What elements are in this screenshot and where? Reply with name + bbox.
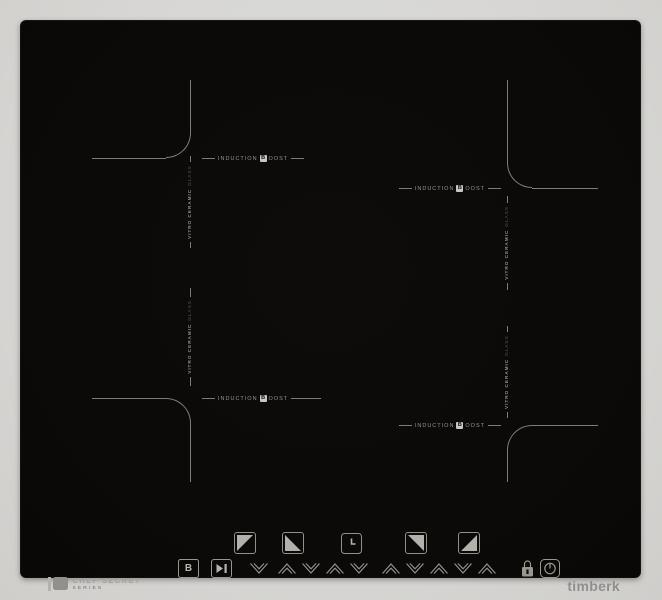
chevron-up-icon <box>325 562 345 575</box>
induction-boost-label: INDUCTIONBOOST <box>418 421 501 430</box>
label-dash <box>202 158 215 159</box>
label-text: INDUCTION <box>218 156 258 162</box>
label-text: GLASS <box>188 165 193 186</box>
boost-key[interactable]: B <box>178 559 199 578</box>
label-text: OOST <box>465 423 485 429</box>
vitro-ceramic-label: VITRO CERAMICGLASS <box>502 347 513 418</box>
chevron-up-icon <box>277 562 297 575</box>
zone-corner-mark <box>190 80 191 134</box>
zone-corner-mark <box>190 423 191 482</box>
cooktop-glass-panel: INDUCTIONBOOST VITRO CERAMICGLASS INDUCT… <box>20 20 641 578</box>
zone-corner-mark <box>92 158 166 159</box>
zone-select-rear-right-key[interactable] <box>405 532 427 554</box>
zone-select-front-left-icon <box>282 532 304 554</box>
label-text: INDUCTION <box>415 423 455 429</box>
induction-boost-label: INDUCTIONBOOST <box>202 154 280 163</box>
chevron-up-icon <box>381 562 401 575</box>
label-text: VITRO CERAMIC <box>188 324 193 374</box>
label-line <box>507 283 508 290</box>
pan-icon <box>48 576 68 591</box>
label-line <box>190 156 191 162</box>
power-up-key[interactable] <box>381 562 401 575</box>
label-text: VITRO CERAMIC <box>505 230 510 280</box>
chevron-down-icon <box>301 562 321 575</box>
series-logo: CHEF SECRET SERIES <box>48 576 141 591</box>
power-up-key[interactable] <box>429 562 449 575</box>
chevron-up-icon <box>429 562 449 575</box>
pan-icon <box>48 577 51 591</box>
power-up-key[interactable] <box>277 562 297 575</box>
zone-corner-mark <box>532 188 598 189</box>
zone-corner-mark <box>166 398 191 423</box>
timer-clock-icon <box>341 533 362 554</box>
label-dash <box>399 425 412 426</box>
label-line <box>507 326 508 332</box>
label-text: VITRO CERAMIC <box>188 189 193 239</box>
play-pause-icon <box>211 559 232 578</box>
boxed-b-glyph: B <box>456 185 463 192</box>
vitro-ceramic-label: VITRO CERAMICGLASS <box>502 196 513 290</box>
chevron-down-icon <box>349 562 369 575</box>
zone-select-front-right-key[interactable] <box>458 532 480 554</box>
label-text: OOST <box>269 396 289 402</box>
zone-select-front-right-icon <box>458 532 480 554</box>
pan-icon <box>53 577 68 590</box>
label-dash <box>399 188 412 189</box>
zone-corner-mark <box>92 398 166 399</box>
product-photo: INDUCTIONBOOST VITRO CERAMICGLASS INDUCT… <box>0 0 662 600</box>
label-text: VITRO CERAMIC <box>505 359 510 409</box>
series-title: CHEF SECRET <box>73 576 141 585</box>
label-text: INDUCTION <box>218 396 258 402</box>
pause-key[interactable] <box>211 559 232 578</box>
power-down-key[interactable] <box>349 562 369 575</box>
zone-select-rear-right-icon <box>405 532 427 554</box>
zone-corner-mark <box>507 80 508 163</box>
vitro-ceramic-label: VITRO CERAMICGLASS <box>185 288 196 386</box>
label-text: GLASS <box>505 206 510 227</box>
label-line <box>507 412 508 418</box>
power-down-key[interactable] <box>249 562 269 575</box>
label-dash <box>291 398 321 399</box>
power-down-key[interactable] <box>405 562 425 575</box>
power-down-key[interactable] <box>301 562 321 575</box>
label-text: OOST <box>465 186 485 192</box>
label-line <box>507 196 508 203</box>
series-subtitle: SERIES <box>73 586 141 591</box>
boost-key-label: B <box>185 564 192 574</box>
label-dash <box>291 158 304 159</box>
label-text: GLASS <box>505 335 510 356</box>
zone-select-rear-left-key[interactable] <box>234 532 256 554</box>
induction-boost-label: INDUCTIONBOOST <box>418 184 501 193</box>
label-dash <box>488 188 501 189</box>
chevron-down-icon <box>249 562 269 575</box>
lock-key[interactable] <box>521 558 534 578</box>
label-line <box>190 242 191 248</box>
lock-icon <box>521 558 534 578</box>
induction-boost-label: INDUCTIONBOOST <box>202 394 302 403</box>
power-icon <box>540 559 560 578</box>
boxed-b-glyph: B <box>456 422 463 429</box>
vitro-ceramic-label: VITRO CERAMICGLASS <box>185 166 196 248</box>
power-up-key[interactable] <box>477 562 497 575</box>
label-dash <box>488 425 501 426</box>
label-line <box>190 377 191 386</box>
brand-logo: timberk <box>567 578 620 594</box>
zone-corner-mark <box>532 425 598 426</box>
zone-select-front-left-key[interactable] <box>282 532 304 554</box>
label-text: OOST <box>269 156 289 162</box>
power-key[interactable] <box>540 559 560 578</box>
chevron-down-icon <box>453 562 473 575</box>
zone-select-rear-left-icon <box>234 532 256 554</box>
boxed-b-glyph: B <box>260 155 267 162</box>
label-line <box>190 288 191 297</box>
chevron-up-icon <box>477 562 497 575</box>
label-text: INDUCTION <box>415 186 455 192</box>
label-dash <box>202 398 215 399</box>
label-text: GLASS <box>188 300 193 321</box>
zone-corner-mark <box>166 133 191 158</box>
boxed-b-glyph: B <box>260 395 267 402</box>
timer-key[interactable] <box>341 533 362 554</box>
zone-corner-mark <box>507 425 532 450</box>
power-down-key[interactable] <box>453 562 473 575</box>
zone-corner-mark <box>507 450 508 482</box>
power-up-key[interactable] <box>325 562 345 575</box>
chevron-down-icon <box>405 562 425 575</box>
zone-corner-mark <box>507 163 532 188</box>
